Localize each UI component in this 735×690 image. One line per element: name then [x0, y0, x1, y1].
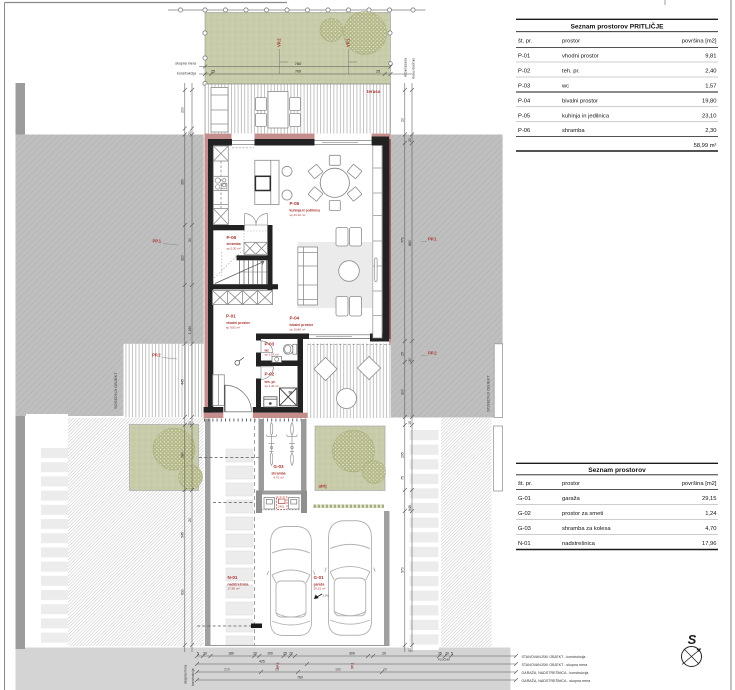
svg-text:STANOVANJSKI OBJEKT - konstruk: STANOVANJSKI OBJEKT - konstrukcija — [522, 655, 586, 659]
svg-text:P-01: P-01 — [518, 54, 530, 60]
svg-text:P-04: P-04 — [518, 98, 531, 104]
svg-text:konstrukcija: konstrukcija — [404, 58, 408, 77]
svg-text:25: 25 — [283, 651, 287, 655]
svg-text:320: 320 — [181, 255, 185, 261]
svg-text:2,40: 2,40 — [705, 69, 716, 75]
svg-text:25: 25 — [211, 69, 215, 73]
svg-text:PP.1: PP.1 — [428, 237, 437, 242]
svg-text:PP.2: PP.2 — [428, 351, 437, 356]
svg-text:atrij: atrij — [319, 484, 327, 489]
svg-text:skupna mera: skupna mera — [184, 665, 188, 684]
svg-text:4,70: 4,70 — [705, 526, 716, 532]
svg-text:300: 300 — [349, 651, 355, 655]
svg-text:300: 300 — [401, 389, 405, 395]
svg-text:VP.1: VP.1 — [351, 662, 355, 669]
svg-text:N-01: N-01 — [518, 541, 531, 547]
svg-text:29,15 m²: 29,15 m² — [314, 587, 326, 591]
svg-text:površina [m2]: površina [m2] — [682, 39, 717, 45]
svg-text:skupna mera: skupna mera — [175, 62, 196, 66]
svg-text:konstrukcija: konstrukcija — [191, 668, 195, 686]
svg-text:št. pr.: št. pr. — [518, 481, 533, 487]
svg-text:sp 19,80 m²: sp 19,80 m² — [290, 327, 306, 331]
svg-text:445: 445 — [181, 379, 185, 385]
svg-text:wc: wc — [561, 84, 569, 90]
svg-text:630: 630 — [181, 589, 185, 595]
svg-text:25: 25 — [275, 667, 279, 671]
svg-text:20: 20 — [188, 421, 192, 425]
svg-text:20: 20 — [203, 651, 207, 655]
svg-text:1,24: 1,24 — [705, 511, 717, 517]
svg-text:280: 280 — [181, 452, 185, 458]
svg-text:545: 545 — [181, 532, 185, 538]
svg-text:sp 23,10 m²: sp 23,10 m² — [290, 213, 306, 217]
svg-text:770: 770 — [401, 237, 405, 243]
svg-text:sp 1,57 m²: sp 1,57 m² — [265, 352, 279, 356]
svg-text:29,15: 29,15 — [702, 496, 717, 502]
svg-text:25: 25 — [438, 651, 442, 655]
svg-text:5: 5 — [451, 651, 453, 655]
svg-text:površina [m2]: površina [m2] — [682, 481, 717, 487]
svg-text:VP.1: VP.1 — [346, 38, 351, 47]
svg-text:kuhinja in jedilnica: kuhinja in jedilnica — [562, 113, 610, 119]
svg-text:1.160: 1.160 — [188, 326, 192, 335]
svg-text:P-03: P-03 — [518, 84, 530, 90]
svg-text:prostor: prostor — [562, 39, 580, 45]
svg-text:23,10: 23,10 — [702, 113, 717, 119]
svg-text:garaža: garaža — [562, 496, 581, 502]
svg-text:P-02: P-02 — [518, 69, 530, 75]
svg-text:PLOČNIK: PLOČNIK — [438, 657, 450, 662]
svg-text:20: 20 — [253, 651, 257, 655]
svg-text:G-01: G-01 — [518, 496, 531, 502]
svg-text:P-04: P-04 — [290, 316, 300, 321]
svg-text:5: 5 — [197, 651, 199, 655]
svg-text:20: 20 — [408, 138, 412, 142]
svg-text:425: 425 — [259, 659, 265, 663]
svg-text:VP.2: VP.2 — [277, 38, 282, 47]
svg-text:700: 700 — [295, 69, 301, 73]
svg-text:shramba: shramba — [562, 128, 585, 134]
svg-text:1,57: 1,57 — [705, 84, 716, 90]
svg-text:Seznam prostorov: Seznam prostorov — [588, 467, 646, 474]
svg-text:G-03: G-03 — [518, 526, 531, 532]
svg-text:PP.2: PP.2 — [152, 353, 161, 358]
svg-text:P-05: P-05 — [290, 201, 300, 206]
svg-text:vhodni prostor: vhodni prostor — [562, 54, 599, 60]
svg-text:S: S — [688, 632, 697, 647]
svg-text:P-03: P-03 — [265, 342, 275, 347]
svg-text:20: 20 — [408, 648, 412, 652]
svg-text:945: 945 — [408, 505, 412, 511]
svg-text:20: 20 — [383, 667, 387, 671]
svg-text:terasa: terasa — [367, 89, 381, 94]
svg-text:17,96 m²: 17,96 m² — [228, 587, 240, 591]
svg-text:sp 2,40 m²: sp 2,40 m² — [265, 384, 279, 388]
svg-text:2,5%: 2,5% — [323, 594, 330, 598]
svg-text:20: 20 — [188, 238, 192, 242]
svg-text:Seznam prostorov PRITLIČJE: Seznam prostorov PRITLIČJE — [570, 21, 664, 30]
svg-text:P-05: P-05 — [518, 113, 530, 119]
svg-text:GARAŽA, NADSTREŠNICA - skupna: GARAŽA, NADSTREŠNICA - skupna mera — [522, 678, 591, 683]
svg-text:SOSEDNJI OBJEKT: SOSEDNJI OBJEKT — [486, 375, 491, 412]
svg-text:teh. pr.: teh. pr. — [562, 69, 580, 75]
svg-text:20: 20 — [408, 358, 412, 362]
svg-text:350: 350 — [181, 179, 185, 185]
svg-text:25: 25 — [376, 69, 380, 73]
svg-text:295: 295 — [401, 452, 405, 458]
svg-text:210: 210 — [224, 667, 230, 671]
svg-text:240L: 240L — [278, 505, 285, 509]
svg-text:skupna mera: skupna mera — [412, 58, 416, 79]
svg-text:20: 20 — [382, 651, 386, 655]
svg-text:100: 100 — [267, 651, 273, 655]
svg-text:760: 760 — [297, 675, 303, 679]
svg-text:15: 15 — [408, 421, 412, 425]
svg-text:nadstrešnica: nadstrešnica — [562, 541, 596, 547]
svg-text:prostor: prostor — [562, 481, 580, 487]
svg-text:200: 200 — [181, 107, 185, 113]
svg-text:20: 20 — [401, 118, 405, 122]
svg-text:860: 860 — [408, 240, 412, 246]
svg-text:PP.1: PP.1 — [153, 239, 162, 244]
svg-text:570: 570 — [401, 567, 405, 573]
svg-text:160: 160 — [335, 667, 341, 671]
svg-text:19,80: 19,80 — [702, 98, 717, 104]
svg-text:P-06: P-06 — [518, 128, 530, 134]
svg-text:N-01: N-01 — [228, 575, 238, 580]
svg-text:STANOVANJSKI OBJEKT - skupna m: STANOVANJSKI OBJEKT - skupna mera — [522, 663, 588, 667]
svg-text:17,96: 17,96 — [702, 541, 717, 547]
svg-text:25: 25 — [401, 352, 405, 356]
svg-text:75: 75 — [401, 476, 405, 480]
svg-text:2,30: 2,30 — [705, 128, 716, 134]
svg-text:20: 20 — [289, 651, 293, 655]
svg-text:P-01: P-01 — [226, 314, 236, 319]
svg-text:20: 20 — [445, 651, 449, 655]
svg-text:P-06: P-06 — [227, 235, 237, 240]
svg-text:P-02: P-02 — [265, 372, 275, 377]
svg-text:št. pr.: št. pr. — [518, 39, 533, 45]
svg-text:GARAŽA, NADSTREŠNICA - konstru: GARAŽA, NADSTREŠNICA - konstrukcija — [522, 670, 589, 675]
svg-text:SOSEDNJI OBJEKT: SOSEDNJI OBJEKT — [113, 372, 118, 409]
svg-text:G-01: G-01 — [314, 575, 325, 580]
svg-text:G-03: G-03 — [273, 464, 284, 469]
svg-text:20: 20 — [188, 131, 192, 135]
svg-text:20: 20 — [188, 518, 192, 522]
svg-text:bivalni prostor: bivalni prostor — [562, 98, 598, 104]
svg-text:shramba za kolesa: shramba za kolesa — [562, 526, 611, 532]
svg-text:G-02: G-02 — [518, 511, 531, 517]
svg-text:prostor za smeti: prostor za smeti — [562, 511, 603, 517]
svg-text:sp 2,30 m²: sp 2,30 m² — [227, 246, 241, 250]
svg-text:9,81: 9,81 — [705, 54, 716, 60]
svg-text:sp 9,81 m²: sp 9,81 m² — [226, 325, 240, 329]
svg-text:760: 760 — [295, 61, 302, 66]
svg-text:58,99 m²: 58,99 m² — [694, 143, 717, 149]
svg-text:4,70 m²: 4,70 m² — [273, 476, 283, 480]
svg-text:180: 180 — [228, 651, 234, 655]
svg-text:konstrukcija: konstrukcija — [177, 72, 196, 76]
